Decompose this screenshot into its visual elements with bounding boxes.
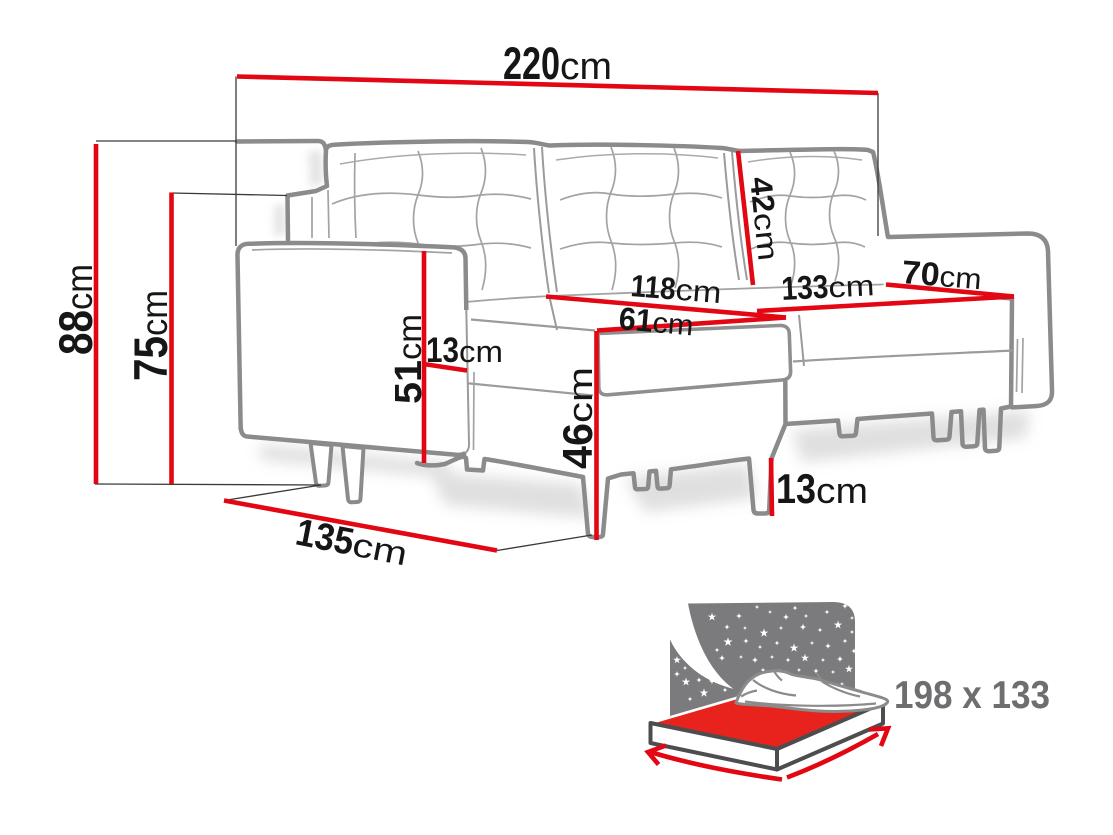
svg-text:198 x 133: 198 x 133 [894,674,1050,717]
svg-text:46cm: 46cm [554,367,601,469]
svg-text:220cm: 220cm [503,38,612,89]
svg-text:13cm: 13cm [776,465,868,512]
svg-text:51cm: 51cm [388,314,430,404]
svg-text:13cm: 13cm [426,331,503,370]
